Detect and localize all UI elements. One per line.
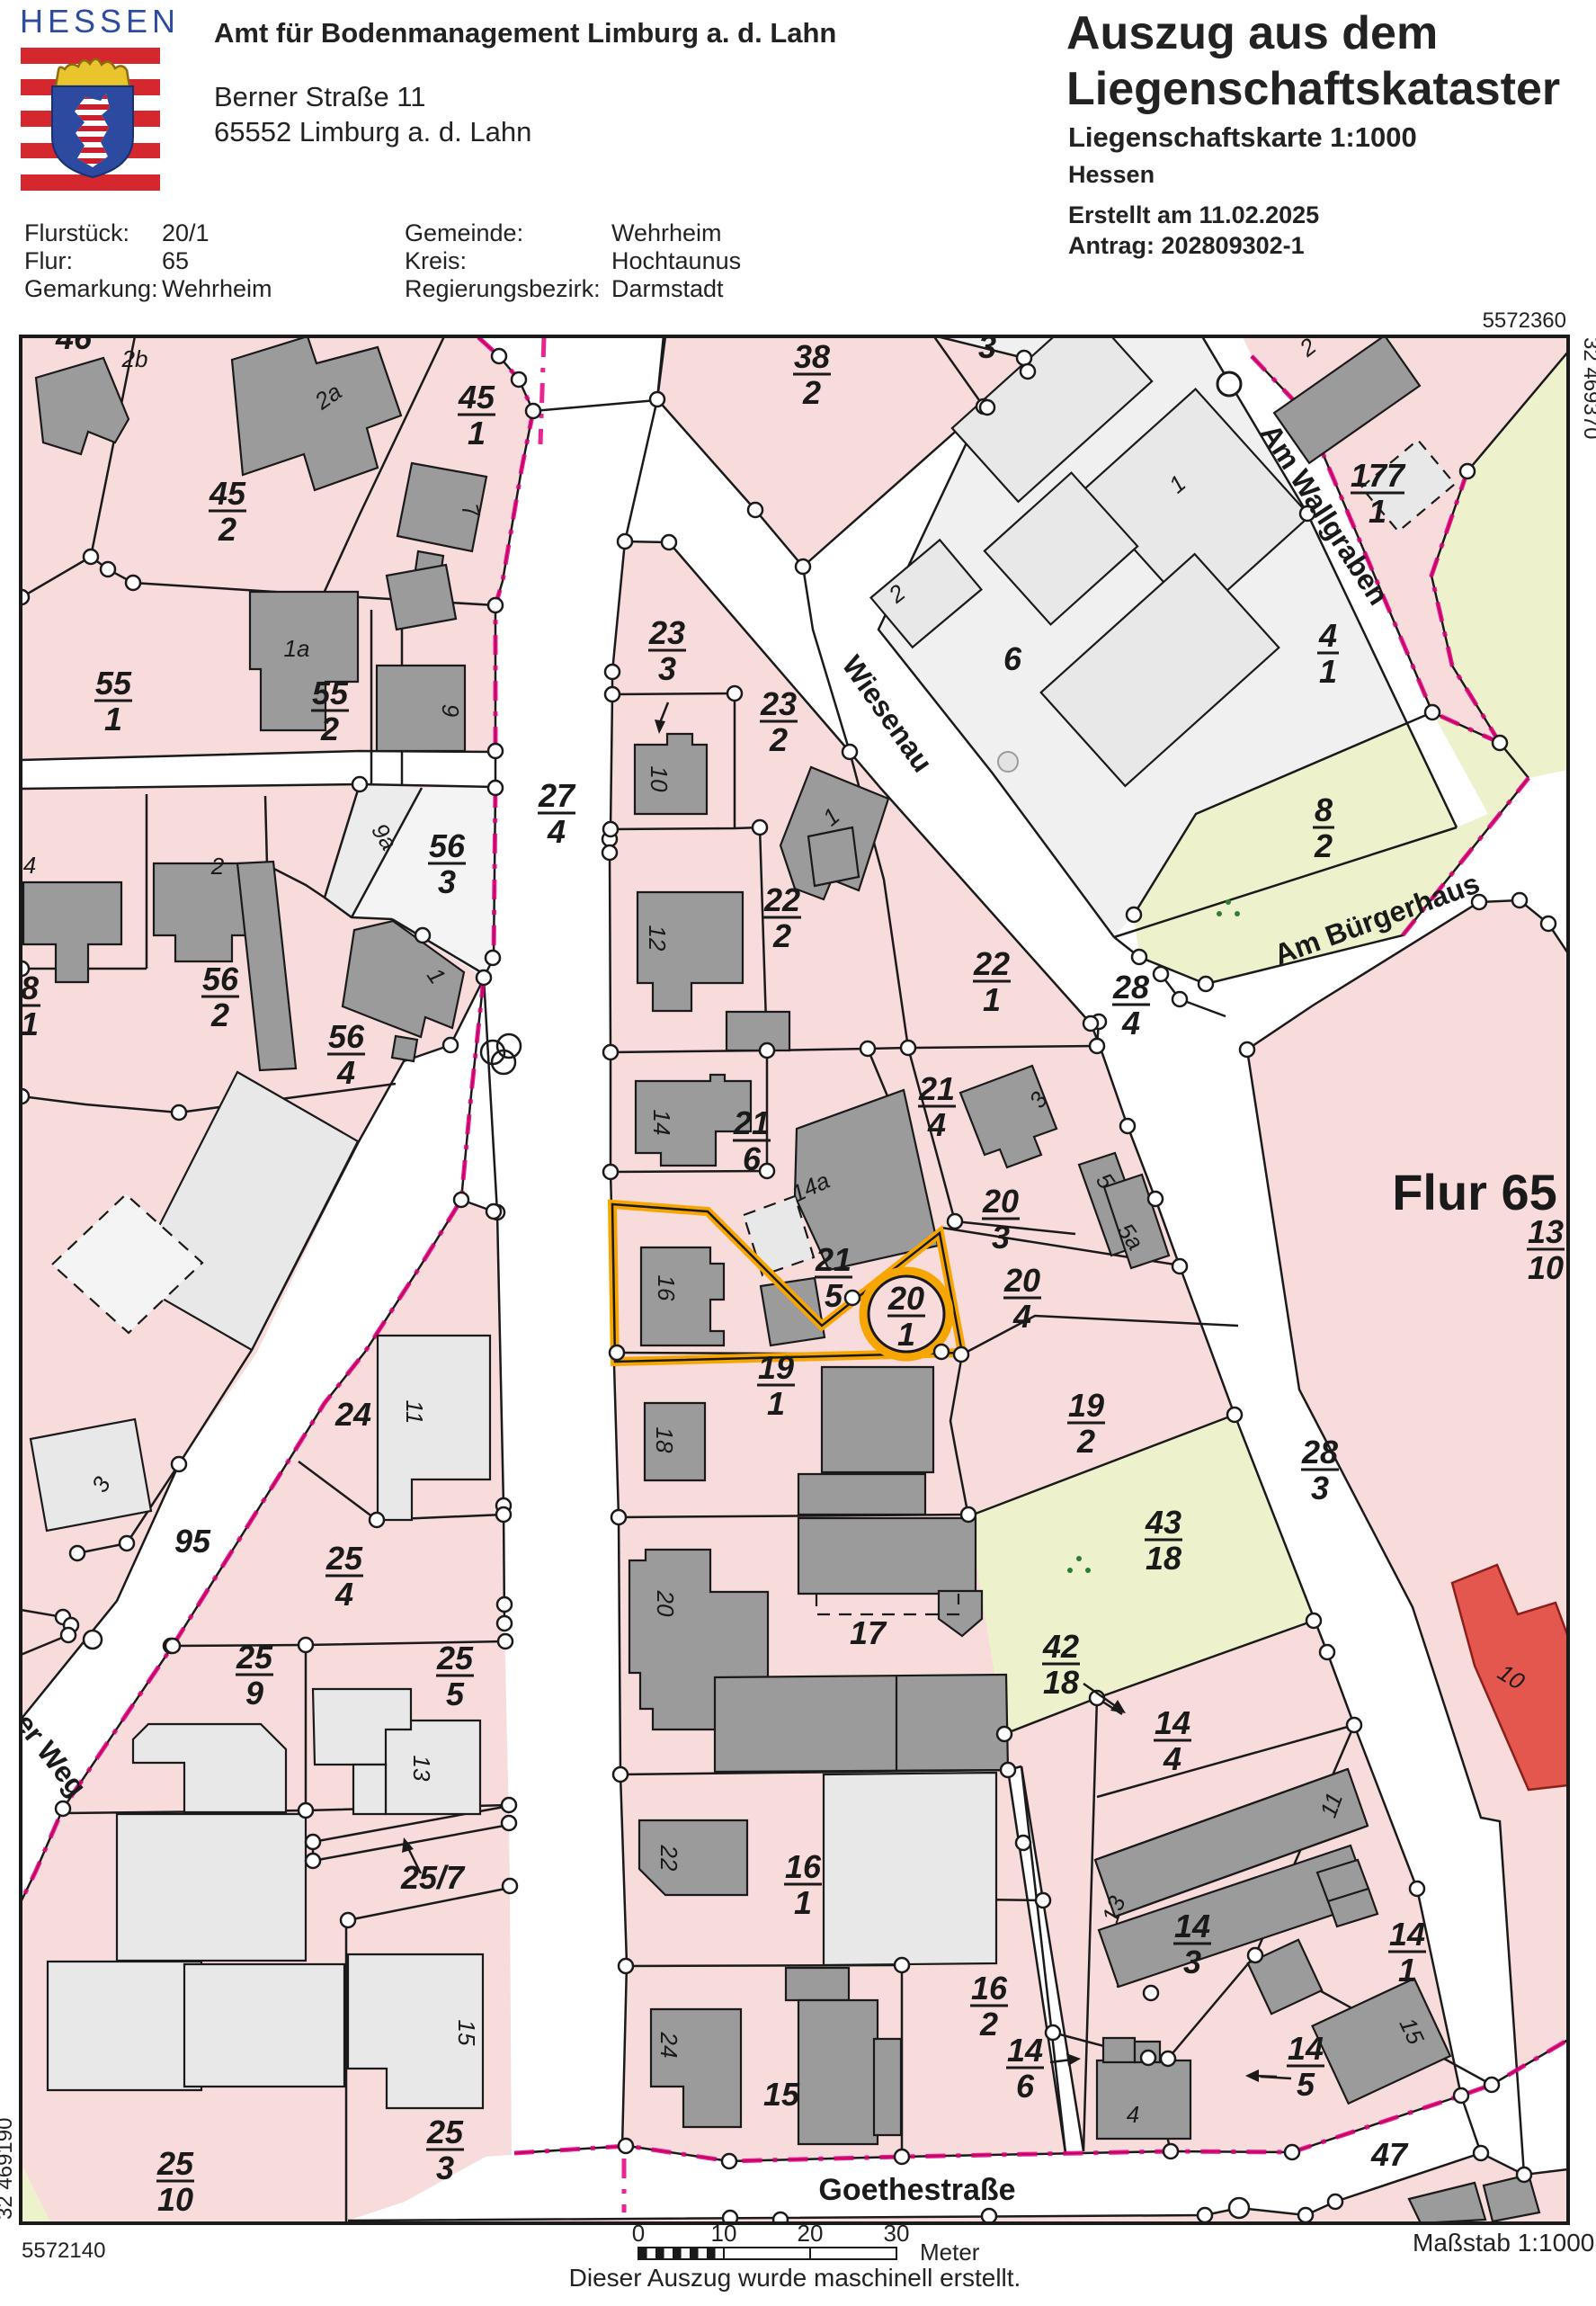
svg-text:1: 1	[468, 415, 486, 451]
svg-text:2: 2	[320, 711, 339, 747]
svg-text:21: 21	[733, 1104, 770, 1141]
svg-text:4: 4	[1163, 1740, 1181, 1777]
svg-text:Flur:: Flur:	[24, 247, 73, 274]
svg-text:4: 4	[23, 852, 36, 879]
svg-text:3: 3	[1183, 1944, 1201, 1980]
svg-text:20: 20	[1003, 1262, 1040, 1299]
svg-text:47: 47	[1370, 2136, 1409, 2173]
svg-text:3: 3	[438, 863, 456, 900]
svg-text:1: 1	[1369, 493, 1386, 530]
svg-text:24: 24	[655, 2032, 682, 2059]
svg-text:30: 30	[884, 2220, 910, 2247]
svg-text:Amt für Bodenmanagement Limbur: Amt für Bodenmanagement Limburg a. d. La…	[214, 17, 836, 49]
svg-text:32 469190: 32 469190	[0, 2118, 17, 2220]
svg-text:21: 21	[918, 1070, 955, 1107]
svg-text:5: 5	[825, 1277, 843, 1314]
svg-text:Erstellt am 11.02.2025: Erstellt am 11.02.2025	[1068, 201, 1319, 228]
svg-text:20: 20	[887, 1280, 924, 1317]
svg-text:9: 9	[437, 704, 464, 717]
svg-text:45: 45	[458, 379, 495, 416]
svg-text:2b: 2b	[121, 345, 148, 372]
svg-text:4: 4	[1121, 1005, 1140, 1041]
svg-text:25: 25	[156, 2145, 194, 2182]
svg-text:Gemeinde:: Gemeinde:	[405, 219, 523, 246]
svg-text:6: 6	[1016, 2068, 1035, 2105]
svg-text:14: 14	[1288, 2030, 1324, 2067]
svg-text:3: 3	[658, 650, 676, 687]
svg-text:Wehrheim: Wehrheim	[611, 219, 722, 246]
svg-text:18: 18	[651, 1427, 678, 1453]
svg-text:2: 2	[210, 997, 229, 1033]
svg-text:6: 6	[743, 1140, 762, 1177]
svg-text:Flur 65: Flur 65	[1392, 1164, 1557, 1220]
svg-text:Hessen: Hessen	[1068, 161, 1155, 188]
svg-text:25: 25	[325, 1540, 363, 1577]
svg-text:HESSEN: HESSEN	[20, 3, 180, 40]
svg-text:5572140: 5572140	[22, 2239, 105, 2263]
svg-text:Flurstück:: Flurstück:	[24, 219, 129, 246]
svg-text:Dieser Auszug wurde maschinell: Dieser Auszug wurde maschinell erstellt.	[569, 2264, 1021, 2292]
svg-text:43: 43	[1145, 1504, 1181, 1541]
svg-text:16: 16	[653, 1275, 680, 1301]
svg-text:3: 3	[978, 328, 996, 365]
svg-text:5572360: 5572360	[1483, 308, 1566, 333]
svg-text:4: 4	[1127, 2101, 1139, 2128]
svg-text:13: 13	[1528, 1213, 1564, 1250]
svg-text:Wehrheim: Wehrheim	[162, 275, 272, 302]
svg-text:28: 28	[1301, 1434, 1338, 1470]
svg-text:2: 2	[1076, 1423, 1095, 1460]
svg-text:45: 45	[209, 475, 246, 512]
svg-text:14: 14	[1174, 1908, 1210, 1944]
svg-text:Liegenschaftskarte 1:1000: Liegenschaftskarte 1:1000	[1068, 121, 1417, 153]
svg-text:Gemarkung:: Gemarkung:	[24, 275, 158, 302]
svg-text:5: 5	[1297, 2066, 1315, 2103]
svg-text:56: 56	[202, 961, 239, 997]
svg-text:4: 4	[1318, 617, 1337, 654]
svg-text:18: 18	[1043, 1664, 1079, 1701]
svg-text:Goethestraße: Goethestraße	[818, 2173, 1015, 2207]
svg-text:14: 14	[1389, 1916, 1425, 1953]
svg-text:32 469370: 32 469370	[1579, 337, 1596, 439]
svg-text:38: 38	[794, 338, 830, 375]
svg-text:9: 9	[245, 1675, 263, 1712]
svg-text:25: 25	[436, 1640, 474, 1676]
svg-text:Auszug aus dem: Auszug aus dem	[1066, 7, 1438, 59]
svg-text:14: 14	[1155, 1704, 1190, 1741]
svg-text:4: 4	[336, 1054, 355, 1091]
svg-text:23: 23	[648, 614, 685, 651]
svg-text:3: 3	[436, 2150, 454, 2186]
svg-text:Liegenschaftskataster: Liegenschaftskataster	[1066, 63, 1560, 115]
svg-text:5: 5	[446, 1676, 465, 1712]
svg-text:13: 13	[408, 1756, 435, 1782]
svg-text:4: 4	[927, 1106, 946, 1143]
svg-text:1: 1	[1319, 653, 1337, 690]
svg-text:23: 23	[760, 685, 797, 722]
svg-text:20/1: 20/1	[162, 219, 210, 246]
svg-text:2: 2	[769, 721, 788, 758]
svg-text:Berner Straße 11: Berner Straße 11	[214, 81, 425, 112]
svg-text:1: 1	[1398, 1952, 1416, 1989]
svg-text:2: 2	[210, 853, 225, 880]
svg-text:Kreis:: Kreis:	[405, 247, 467, 274]
svg-text:8: 8	[1315, 791, 1333, 828]
svg-text:3: 3	[1311, 1470, 1329, 1506]
svg-text:Hochtaunus: Hochtaunus	[611, 247, 741, 274]
svg-text:27: 27	[538, 777, 576, 814]
svg-text:2: 2	[772, 917, 791, 954]
svg-text:1a: 1a	[284, 635, 310, 662]
svg-text:15: 15	[763, 2076, 800, 2113]
svg-text:42: 42	[1042, 1628, 1079, 1665]
svg-text:20: 20	[982, 1183, 1019, 1220]
svg-text:22: 22	[973, 945, 1010, 982]
svg-text:8: 8	[21, 970, 39, 1006]
svg-text:10: 10	[157, 2181, 193, 2218]
svg-text:55: 55	[312, 675, 349, 711]
svg-text:12: 12	[644, 925, 671, 952]
svg-text:1: 1	[897, 1316, 915, 1353]
svg-text:1: 1	[104, 701, 122, 737]
svg-text:25: 25	[236, 1639, 273, 1676]
svg-text:10: 10	[1528, 1249, 1564, 1286]
svg-text:22: 22	[763, 881, 800, 918]
svg-text:17: 17	[850, 1614, 887, 1651]
svg-text:1: 1	[767, 1385, 785, 1422]
svg-text:21: 21	[815, 1241, 851, 1278]
svg-text:2: 2	[218, 511, 236, 548]
svg-text:11: 11	[401, 1400, 428, 1425]
svg-text:25/7: 25/7	[400, 1859, 466, 1896]
svg-text:1: 1	[983, 981, 1001, 1018]
svg-text:Maßstab 1:1000: Maßstab 1:1000	[1413, 2229, 1594, 2257]
svg-text:19: 19	[1068, 1387, 1104, 1424]
svg-text:2: 2	[979, 2006, 998, 2042]
svg-text:20: 20	[652, 1590, 679, 1617]
svg-text:6: 6	[1003, 640, 1022, 677]
svg-text:1: 1	[794, 1884, 812, 1921]
svg-text:2: 2	[1314, 827, 1333, 864]
svg-text:55: 55	[95, 665, 132, 702]
svg-text:20: 20	[798, 2220, 824, 2247]
svg-text:25: 25	[426, 2114, 464, 2150]
svg-text:65552 Limburg a. d. Lahn: 65552 Limburg a. d. Lahn	[214, 116, 531, 147]
svg-text:56: 56	[429, 827, 466, 864]
svg-text:65: 65	[162, 247, 189, 274]
svg-text:0: 0	[632, 2220, 645, 2247]
svg-text:10: 10	[711, 2220, 737, 2247]
svg-text:14: 14	[1007, 2032, 1043, 2069]
svg-text:4: 4	[547, 813, 566, 850]
svg-text:177: 177	[1351, 457, 1406, 494]
svg-text:28: 28	[1112, 969, 1149, 1006]
svg-text:56: 56	[328, 1018, 365, 1055]
svg-text:14: 14	[648, 1110, 675, 1136]
svg-text:3: 3	[992, 1219, 1010, 1256]
svg-text:15: 15	[453, 2020, 480, 2046]
svg-text:10: 10	[646, 766, 673, 792]
svg-text:24: 24	[334, 1396, 371, 1433]
svg-text:4: 4	[1012, 1298, 1031, 1335]
svg-text:19: 19	[758, 1349, 794, 1386]
svg-text:4: 4	[334, 1576, 353, 1613]
svg-text:95: 95	[174, 1523, 211, 1560]
svg-text:Regierungsbezirk:: Regierungsbezirk:	[405, 275, 601, 302]
svg-text:16: 16	[971, 1970, 1008, 2007]
svg-text:18: 18	[1146, 1540, 1181, 1577]
svg-text:Antrag: 202809302-1: Antrag: 202809302-1	[1068, 232, 1305, 259]
svg-text:2: 2	[802, 374, 821, 411]
svg-text:22: 22	[655, 1845, 682, 1872]
svg-text:1: 1	[21, 1006, 39, 1042]
svg-text:16: 16	[785, 1848, 822, 1885]
svg-text:Darmstadt: Darmstadt	[611, 275, 724, 302]
svg-text:Meter: Meter	[920, 2239, 980, 2266]
